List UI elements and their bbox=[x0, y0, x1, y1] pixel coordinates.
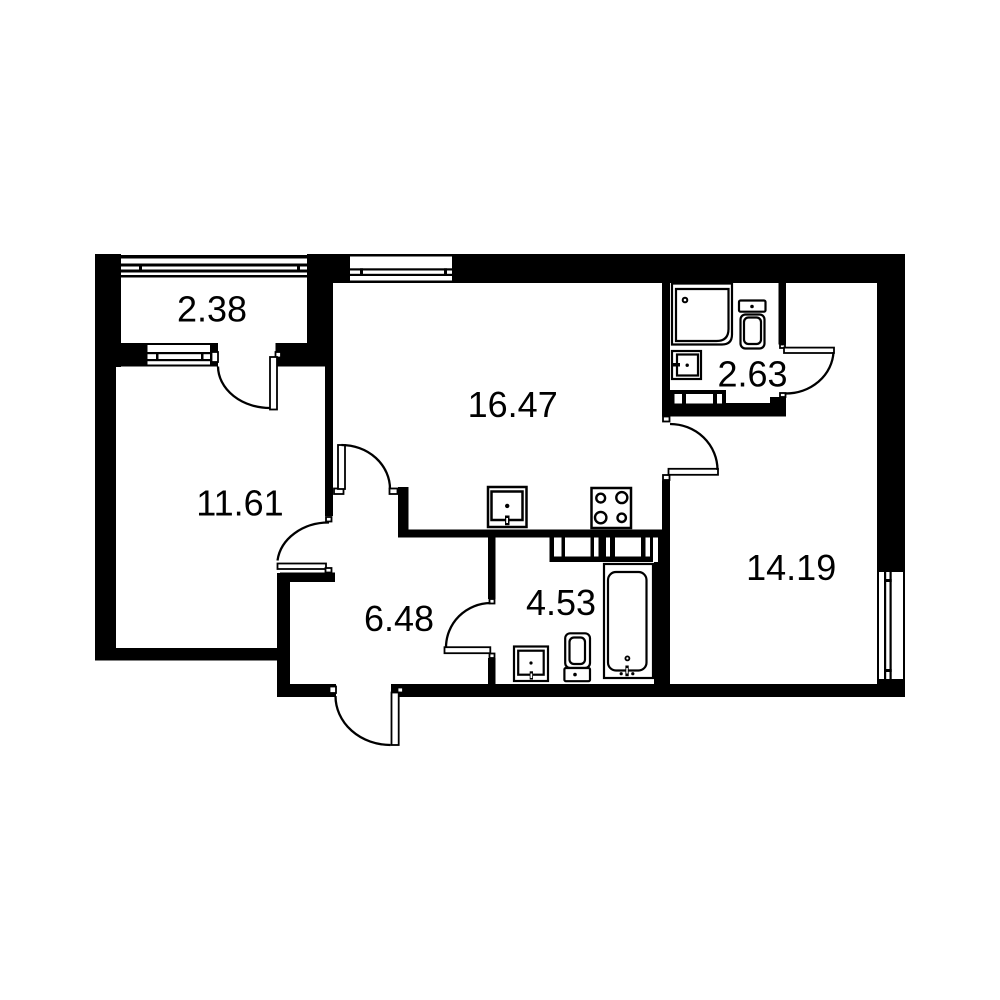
svg-text:6.48: 6.48 bbox=[364, 598, 434, 639]
svg-text:16.47: 16.47 bbox=[468, 384, 558, 425]
svg-text:2.38: 2.38 bbox=[177, 289, 247, 330]
svg-text:14.19: 14.19 bbox=[746, 547, 836, 588]
svg-text:2.63: 2.63 bbox=[717, 353, 787, 394]
svg-text:11.61: 11.61 bbox=[196, 482, 283, 523]
svg-text:4.53: 4.53 bbox=[526, 582, 596, 623]
